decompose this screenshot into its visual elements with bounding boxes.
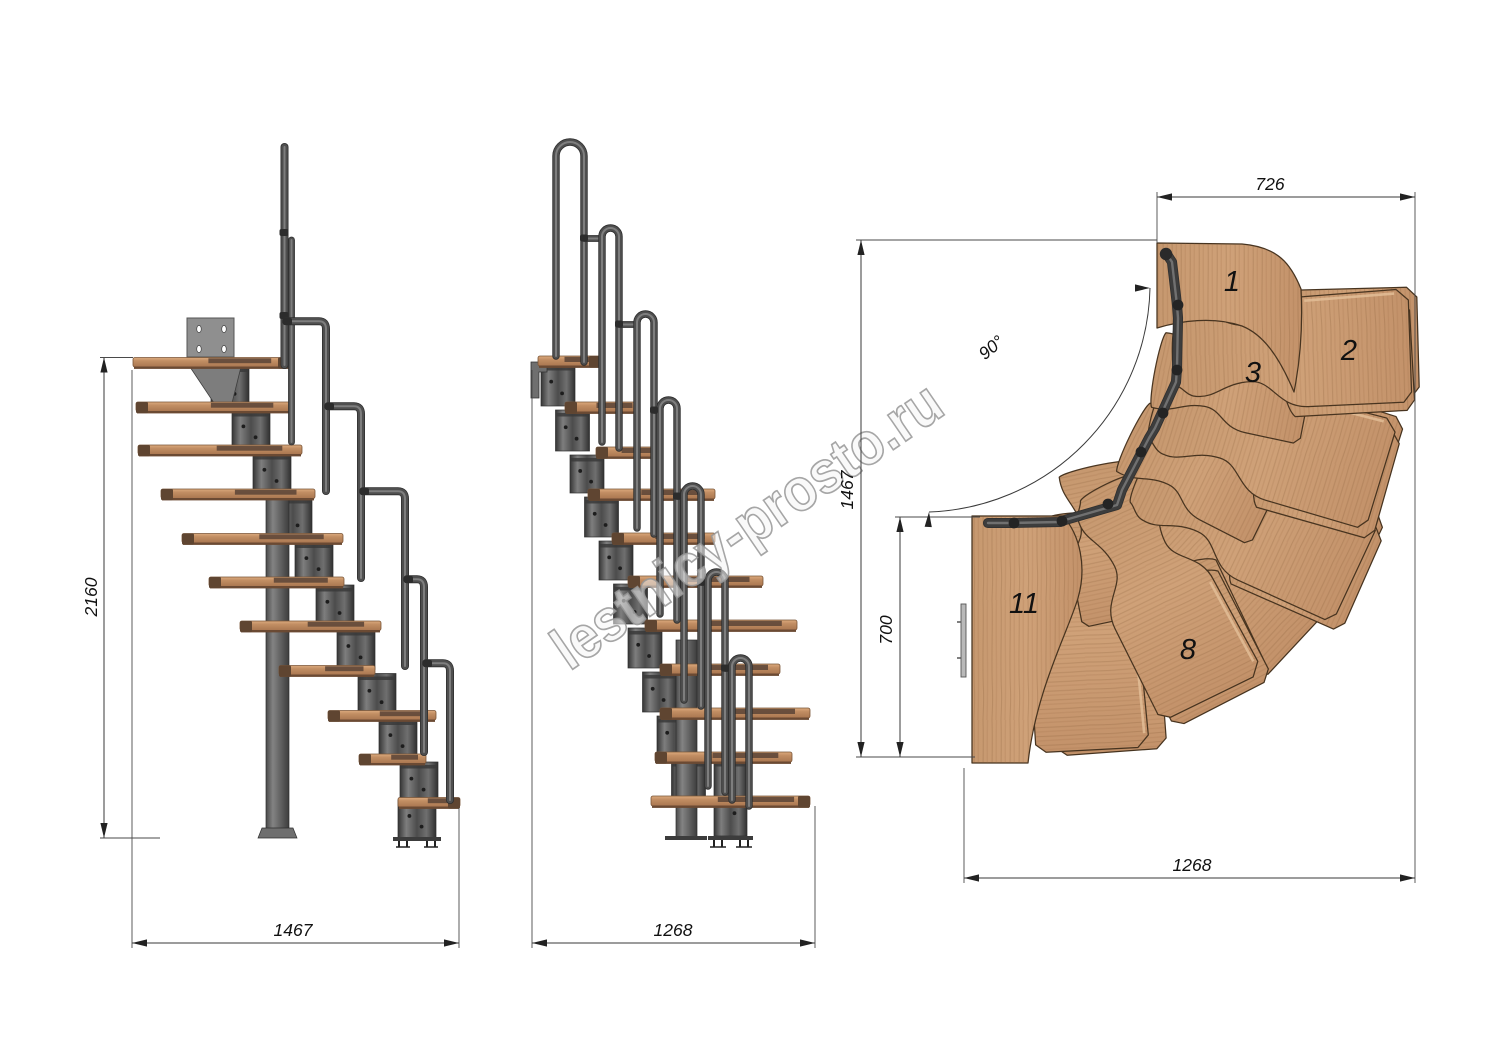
svg-text:726: 726 (1255, 174, 1284, 194)
svg-text:1: 1 (1224, 266, 1240, 298)
svg-text:1467: 1467 (274, 920, 314, 940)
svg-text:8: 8 (1180, 634, 1196, 666)
svg-text:1268: 1268 (654, 920, 693, 940)
svg-text:700: 700 (876, 615, 896, 644)
svg-text:3: 3 (1245, 357, 1261, 389)
svg-text:11: 11 (1009, 588, 1039, 620)
svg-text:1268: 1268 (1173, 855, 1212, 875)
svg-text:2: 2 (1340, 335, 1357, 367)
svg-text:1467: 1467 (837, 469, 857, 509)
svg-text:2160: 2160 (81, 577, 101, 617)
